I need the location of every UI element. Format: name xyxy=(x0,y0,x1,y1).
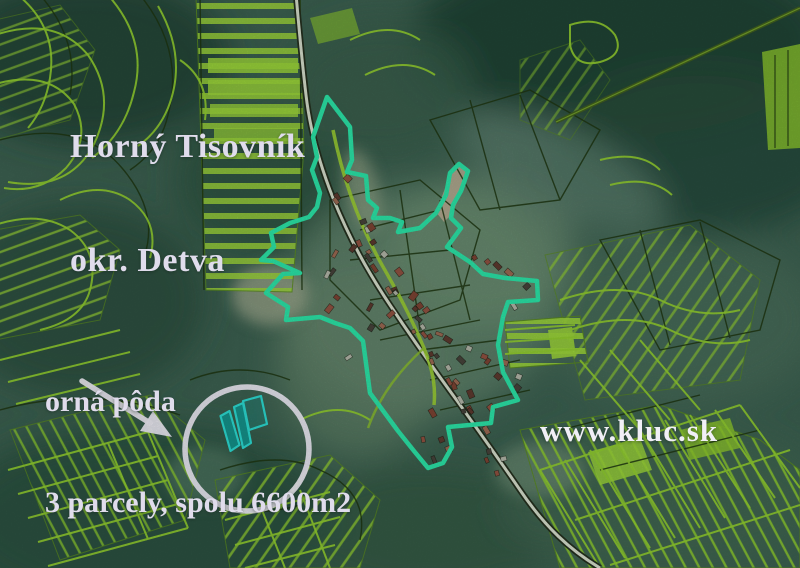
grain-overlay xyxy=(0,0,800,568)
map-screenshot: Horný Tisovník okr. Detva orná pôda 3 pa… xyxy=(0,0,800,568)
map-image xyxy=(0,0,800,568)
